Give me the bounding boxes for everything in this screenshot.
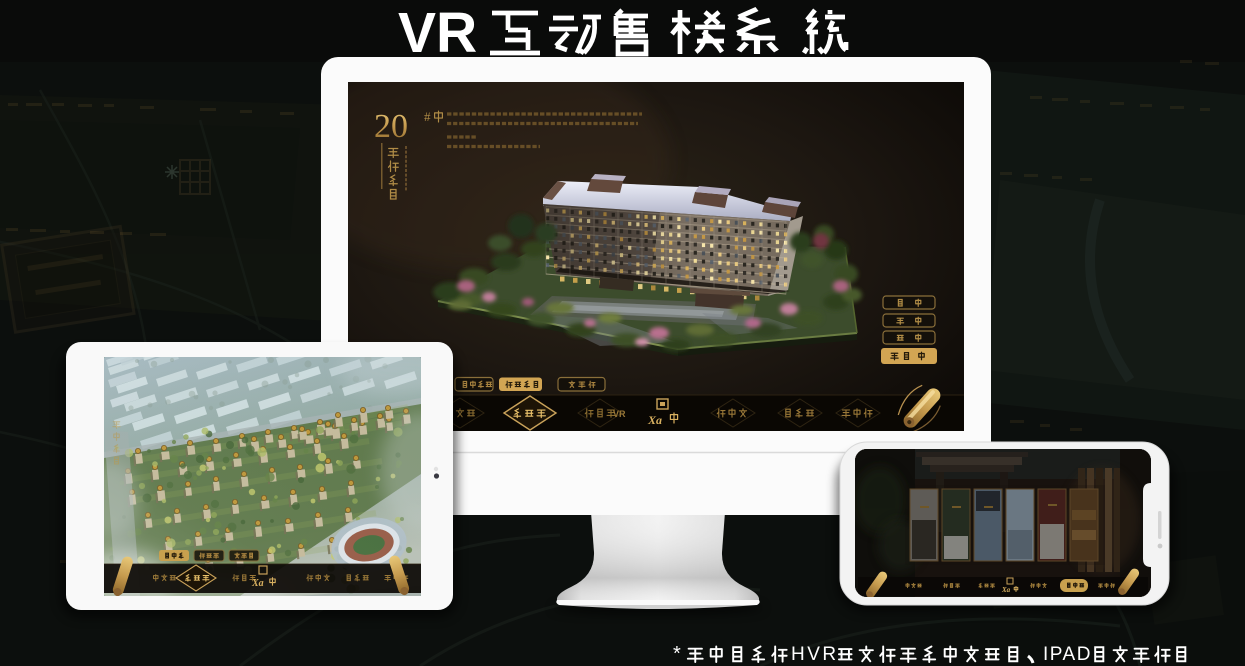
svg-text:VR: VR <box>398 1 477 65</box>
svg-text:Xa: Xa <box>647 413 662 427</box>
svg-text:HVR: HVR <box>791 644 839 665</box>
svg-text:Xa: Xa <box>1001 586 1011 594</box>
svg-text:Xa: Xa <box>251 578 264 589</box>
svg-text:20: 20 <box>374 108 408 145</box>
svg-text:#: # <box>424 109 431 124</box>
svg-text:IPAD: IPAD <box>1043 644 1092 665</box>
svg-text:*: * <box>673 643 681 665</box>
svg-text:VR: VR <box>613 409 626 419</box>
